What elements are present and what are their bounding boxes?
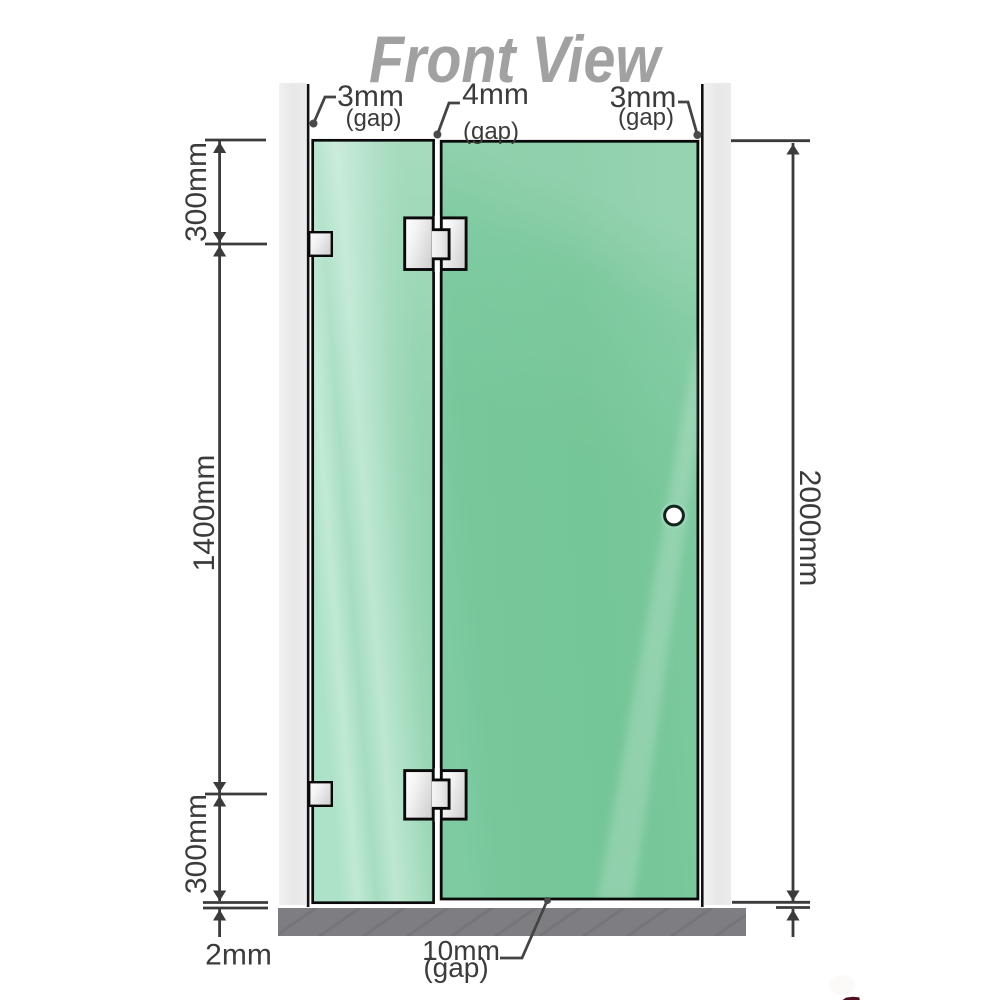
svg-text:2000mm: 2000mm: [793, 470, 826, 587]
svg-text:2mm: 2mm: [205, 939, 272, 972]
svg-text:300mm: 300mm: [180, 142, 213, 242]
svg-text:(gap): (gap): [463, 118, 519, 145]
svg-text:(gap): (gap): [423, 952, 488, 983]
svg-text:4mm: 4mm: [462, 78, 529, 111]
svg-text:300mm: 300mm: [180, 794, 213, 894]
svg-text:(gap): (gap): [618, 104, 674, 131]
svg-text:1400mm: 1400mm: [188, 455, 221, 572]
svg-text:(gap): (gap): [345, 105, 401, 132]
